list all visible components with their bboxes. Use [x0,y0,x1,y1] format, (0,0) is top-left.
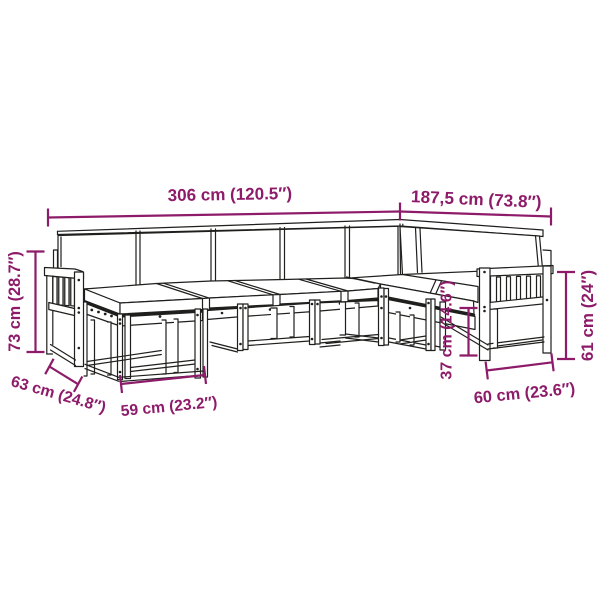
svg-text:306 cm (120.5″): 306 cm (120.5″) [168,184,293,205]
svg-text:61 cm (24″): 61 cm (24″) [578,270,597,361]
svg-text:73 cm (28.7″): 73 cm (28.7″) [6,251,24,351]
svg-text:37 cm (14.6″): 37 cm (14.6″) [439,280,456,379]
